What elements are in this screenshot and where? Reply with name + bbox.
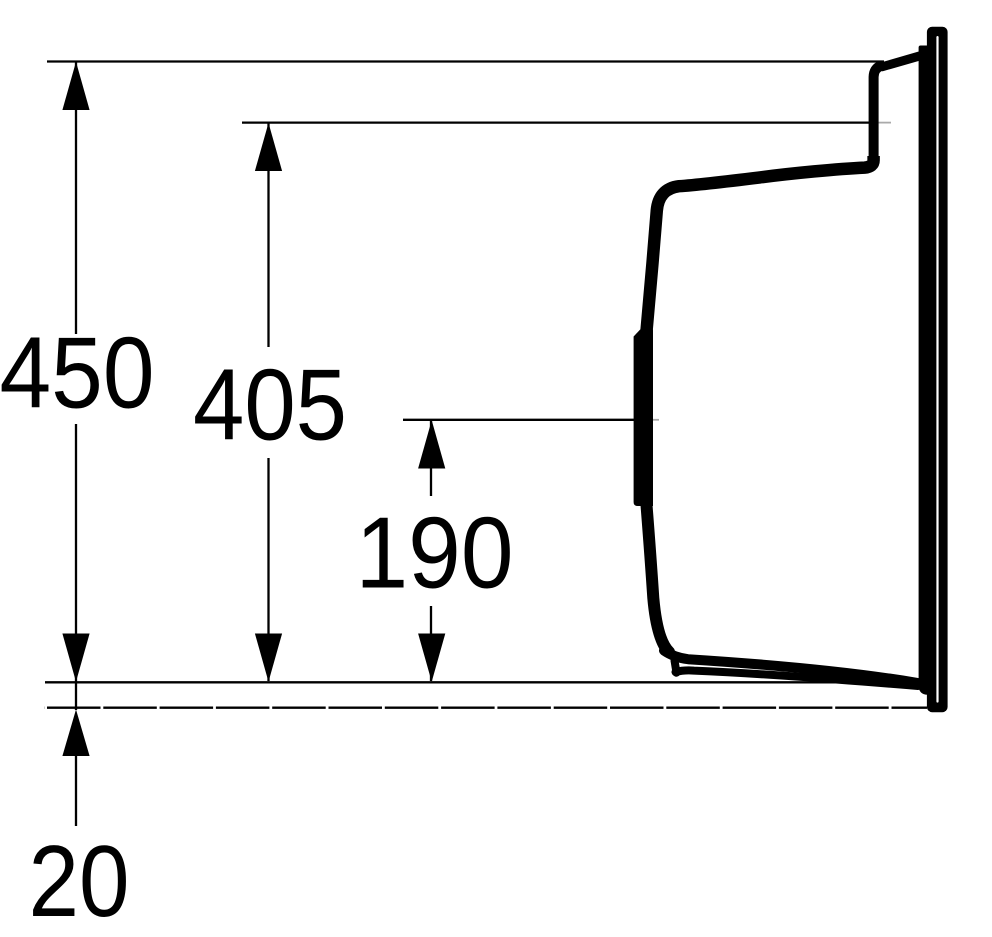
svg-text:450: 450 — [0, 318, 155, 430]
svg-text:20: 20 — [29, 826, 130, 937]
svg-text:190: 190 — [356, 498, 514, 610]
svg-text:405: 405 — [193, 350, 347, 462]
